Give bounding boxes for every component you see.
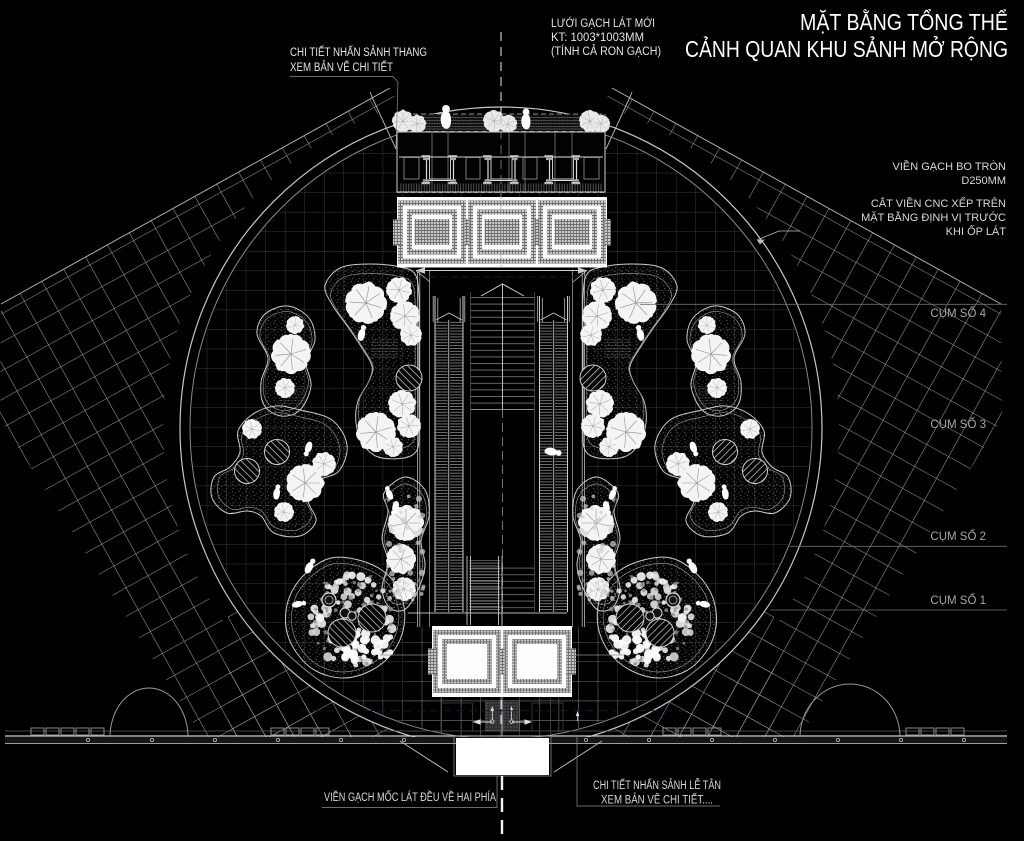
svg-text:CỤM SỐ 4: CỤM SỐ 4	[930, 306, 986, 320]
svg-text:MẶT BẰNG TỔNG THỂ: MẶT BẰNG TỔNG THỂ	[800, 8, 1008, 35]
svg-text:CỤM SỐ 1: CỤM SỐ 1	[930, 593, 986, 607]
svg-text:CHI TIẾT NHẤN SẢNH LỄ TÂN: CHI TIẾT NHẤN SẢNH LỄ TÂN	[593, 779, 721, 792]
svg-text:XEM BẢN VẼ CHI TIẾT: XEM BẢN VẼ CHI TIẾT	[290, 61, 393, 74]
svg-text:VIỀN GẠCH BO TRÒN: VIỀN GẠCH BO TRÒN	[893, 160, 1007, 173]
svg-text:MẶT BẰNG ĐỊNH VỊ TRƯỚC: MẶT BẰNG ĐỊNH VỊ TRƯỚC	[861, 211, 1006, 224]
svg-text:CHI TIẾT NHẤN SẢNH THANG: CHI TIẾT NHẤN SẢNH THANG	[290, 46, 427, 59]
svg-text:CỤM SỐ 3: CỤM SỐ 3	[930, 417, 986, 431]
svg-text:KT: 1003*1003MM: KT: 1003*1003MM	[551, 32, 644, 44]
svg-text:D250MM: D250MM	[961, 175, 1006, 187]
svg-text:CẢNH QUAN KHU SẢNH MỞ RỘNG: CẢNH QUAN KHU SẢNH MỞ RỘNG	[685, 34, 1008, 62]
svg-text:VIỀN GẠCH MỐC LÁT ĐỀU VỀ HAI P: VIỀN GẠCH MỐC LÁT ĐỀU VỀ HAI PHÍA	[324, 790, 496, 804]
svg-text:LƯỚI GẠCH LÁT MỚI: LƯỚI GẠCH LÁT MỚI	[551, 17, 655, 30]
svg-text:XEM BẢN VẼ CHI TIẾT....: XEM BẢN VẼ CHI TIẾT....	[601, 794, 713, 807]
svg-text:KHI ỐP LÁT: KHI ỐP LÁT	[946, 224, 1007, 238]
svg-text:(TÍNH CẢ RON GẠCH): (TÍNH CẢ RON GẠCH)	[551, 45, 661, 58]
svg-text:CỤM SỐ 2: CỤM SỐ 2	[930, 529, 986, 543]
svg-text:CẮT VIỀN CNC XẾP TRÊN: CẮT VIỀN CNC XẾP TRÊN	[871, 197, 1006, 210]
